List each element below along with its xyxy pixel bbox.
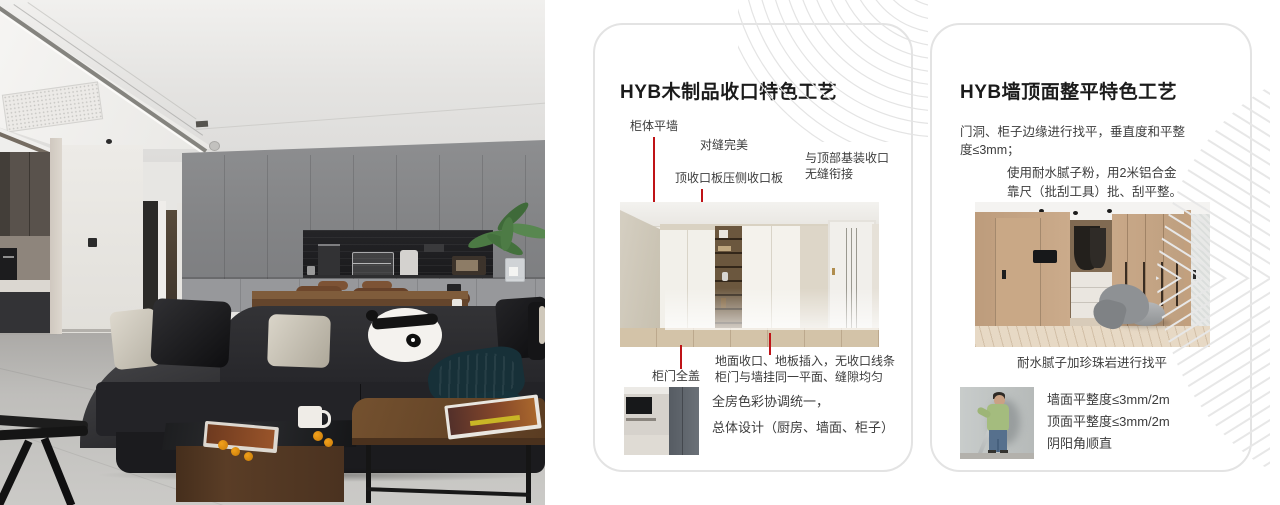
render-glare <box>665 288 879 330</box>
para-leveling-line2: 度≤3mm； <box>960 143 1020 157</box>
stone-table-wood-base <box>176 446 344 502</box>
orange-fruit <box>218 440 228 450</box>
orange-fruit <box>231 447 240 456</box>
note-color-line2: 总体设计（厨房、墙面、柜子） <box>712 421 894 435</box>
glass-door-handle <box>1193 270 1196 279</box>
orange-fruit <box>324 438 333 447</box>
orange-fruit <box>313 431 323 441</box>
pillow-beige-sliver <box>539 306 545 344</box>
interior-thumbnail <box>624 387 699 455</box>
note-corner-straightness: 阴阳角顺直 <box>1047 436 1112 451</box>
floor-herringbone-lines <box>975 326 1210 347</box>
pillow-beige <box>267 314 331 368</box>
niche-switch-plate <box>424 244 444 252</box>
callout-top-joint-line1: 与顶部基装收口 <box>805 151 889 165</box>
kitchen-base-cabinets <box>0 292 57 333</box>
kitchen-cabinet-seam <box>29 152 30 236</box>
callout-top-closing-panel: 顶收口板压侧收口板 <box>675 171 783 185</box>
note-floor-line1: 地面收口、地板插入，无收口线条 <box>715 354 895 368</box>
shelf-item-frame <box>719 230 728 238</box>
intercom-panel <box>1033 250 1057 263</box>
shelf-item-vase <box>722 272 728 281</box>
light-switch <box>88 238 97 247</box>
para-putty-line1: 使用耐水腻子粉，用2米铝合金 <box>1007 166 1176 180</box>
floor-planks <box>620 328 879 347</box>
door-handle-black <box>1002 270 1006 279</box>
thumb-cabinet-seam <box>682 387 683 455</box>
wardrobe-handle-slot <box>1161 262 1163 306</box>
jeans-split <box>997 439 999 452</box>
spotlight-icon <box>106 139 112 144</box>
ceiling-fixture <box>196 121 208 128</box>
white-coffee-maker <box>400 250 418 275</box>
note-ceiling-flatness: 顶面平整度≤3mm/2m <box>1047 414 1170 429</box>
kitchen-floor-sliver <box>0 333 57 335</box>
page: HYB木制品收口特色工艺 柜体平墙 对缝完美 顶收口板压侧收口板 与顶部基装收口… <box>0 0 1280 505</box>
smoke-detector <box>209 141 220 151</box>
pillow-black-leather <box>150 298 231 368</box>
worker-leveling-thumbnail <box>960 387 1034 459</box>
wardrobe-render-image <box>620 202 879 347</box>
living-room-photo <box>0 0 545 505</box>
plant <box>465 205 545 280</box>
thumb-floor <box>624 435 669 455</box>
worker-torso-green-shirt <box>987 404 1009 432</box>
card1-title: HYB木制品收口特色工艺 <box>620 77 837 104</box>
card2-title: HYB墙顶面整平特色工艺 <box>960 77 1177 104</box>
para-leveling-line1: 门洞、柜子边缘进行找平，垂直度和平整 <box>960 125 1185 139</box>
shelf-item-books <box>718 246 731 251</box>
dining-table-top <box>252 291 468 299</box>
coffee-machine <box>0 248 17 282</box>
callout-door-full-cover: 柜门全盖 <box>652 369 700 383</box>
opening-side-reveal <box>50 138 62 334</box>
thumb-tv <box>626 397 652 414</box>
note-floor-line2: 柜门与墙挂同一平面、缝隙均匀 <box>715 370 883 384</box>
card-wood-finishing: HYB木制品收口特色工艺 柜体平墙 对缝完美 顶收口板压侧收口板 与顶部基装收口… <box>593 23 913 472</box>
thumb-gray-cabinet <box>669 387 699 455</box>
hanging-clothes <box>1090 228 1106 268</box>
espresso-machine <box>318 244 340 277</box>
vase-label <box>509 267 518 276</box>
door-handle-gold <box>832 268 835 275</box>
entry-hallway-photo <box>975 202 1210 347</box>
thumb-floor-strip <box>960 453 1034 459</box>
downlight-icon <box>1073 211 1078 215</box>
kitchen-opening <box>0 128 57 335</box>
thumb-media-shelf <box>626 418 656 421</box>
callout-perfect-seam: 对缝完美 <box>700 138 748 152</box>
orange-fruit <box>244 452 253 461</box>
panda-eye <box>411 338 415 342</box>
card-wall-leveling: HYB墙顶面整平特色工艺 门洞、柜子边缘进行找平，垂直度和平整 度≤3mm； 使… <box>930 23 1252 472</box>
cup-rack-shelf <box>353 263 391 264</box>
coffee-machine-detail <box>3 256 14 258</box>
leader-line-floor-joint <box>769 333 771 355</box>
downlight-icon <box>1107 209 1112 213</box>
wardrobe-handle-slot <box>1176 262 1178 306</box>
door-frame-wood <box>1184 210 1191 337</box>
callout-cabinet-flush-wall: 柜体平墙 <box>630 119 678 133</box>
kitchen-cabinet-dark-column <box>0 152 10 236</box>
small-mug <box>307 266 315 275</box>
render-left-wall <box>620 210 660 347</box>
table-metal-leg <box>366 445 371 503</box>
callout-top-joint-line2: 无缝衔接 <box>805 167 853 181</box>
note-wall-flatness: 墙面平整度≤3mm/2m <box>1047 392 1170 407</box>
caption-pearlite-leveling: 耐水腻子加珍珠岩进行找平 <box>1017 356 1167 370</box>
white-wall <box>62 145 143 333</box>
note-color-line1: 全房色彩协调统一， <box>712 395 829 409</box>
para-putty-line2: 靠尺（批刮工具）批、刮平整。 <box>1007 185 1182 199</box>
cup-rack <box>352 252 394 277</box>
leader-line-door-cover <box>680 345 682 369</box>
